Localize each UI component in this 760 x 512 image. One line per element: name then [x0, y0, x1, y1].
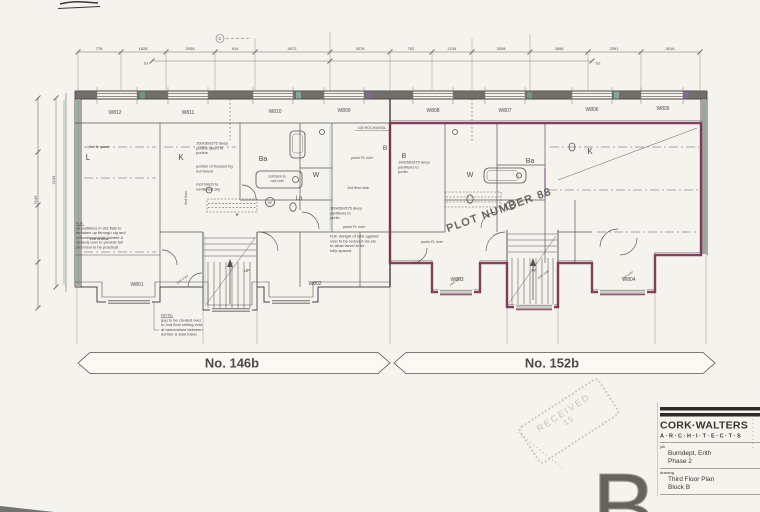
dim-value: 914 [232, 46, 239, 51]
drawing-title: Third Floor Plan [668, 475, 760, 483]
title-block: CORK·WALTERS A·R·C·H·I·T·E·C·T·S job Bur… [657, 402, 760, 497]
purlin-over-label: purlin FL over [420, 240, 444, 244]
room-label-bed: B [383, 145, 387, 152]
bathtub-right [484, 168, 526, 183]
left-dimension-lines: 7146 2134 [33, 93, 66, 311]
purlin-over-label: purlin FL over [342, 225, 366, 229]
architect-profession: A·R·C·H·I·T·E·C·T·S [660, 433, 760, 439]
title-block-rule [660, 443, 760, 444]
floor-slab-label: 2nd floor slab [346, 186, 369, 190]
bottom-windows-right [438, 289, 647, 310]
floor-space-label: 2nd flr space [88, 145, 110, 149]
note-line: not below [196, 169, 251, 174]
floor-label-rotated: 2nd floor [184, 190, 188, 205]
dim-value: 778 [96, 46, 103, 51]
note-line: ventilated sky [196, 187, 241, 192]
dim-value: 2896 [555, 46, 565, 51]
note-trussed: portion of trussed rtg not below [196, 164, 251, 174]
banner-146b-label: No. 146b [205, 356, 259, 371]
basin [320, 130, 325, 135]
room-label-bath: Ba [526, 158, 535, 165]
window-label: W808 [426, 108, 439, 114]
room-label-kitchen: K [178, 153, 184, 162]
dim-mark-s2: S2 [596, 61, 602, 66]
window-label: W812 [108, 110, 121, 116]
rockwool-label: 100 ROCKWOOL [358, 126, 386, 130]
wh-label: WH [268, 200, 273, 204]
address-banners: No. 146b No. 152b [78, 353, 715, 374]
window-label: W807 [498, 108, 511, 114]
note-line: purlin [330, 216, 385, 221]
floor-plan-drawing: 778 1828 2938 914 4572 3076 762 2134 300… [0, 0, 760, 512]
note-tank-weight: N.B. Weight of tank applied over to be r… [330, 234, 395, 253]
note-roof-hatch: roof hatch to ventilated sky [196, 182, 241, 192]
dim-value: 2591 [610, 46, 620, 51]
note-stair: NOTE: gap to be created over to 2nd floo… [161, 313, 236, 337]
asterisk-mark: * [235, 212, 238, 221]
note-partitions: N.B. all partitions in 3rd flats to be t… [76, 221, 151, 250]
window-label: W810 [268, 109, 281, 115]
title-block-bar [660, 413, 760, 417]
window-label: W805 [656, 106, 669, 112]
bathtub-left [290, 131, 305, 158]
dim-value-left: 7146 [33, 195, 38, 205]
job-name: Burndept, Erith [668, 449, 760, 457]
note-line: snd insul to be practical. [76, 245, 151, 250]
bottom-windows-left [106, 300, 312, 313]
tank-note-line: cold tank to [268, 175, 285, 179]
title-block-bar [660, 407, 760, 411]
window-label: W809 [337, 108, 350, 114]
job-phase: Phase 2 [668, 457, 760, 465]
dim-value: 762 [408, 46, 415, 51]
architect-firm-name: CORK·WALTERS [660, 420, 760, 432]
dim-value: 2134 [448, 46, 458, 51]
title-block-rule [660, 495, 760, 496]
window-label: W802 [308, 281, 321, 287]
dim-value: 3008 [497, 46, 507, 51]
window-label: W806 [585, 107, 598, 113]
door-arcs [162, 185, 637, 287]
watermark-letter-b: B [592, 454, 656, 512]
stair-left [204, 238, 256, 308]
drawing-block: Block B [668, 483, 760, 491]
scan-artifacts [0, 2, 100, 512]
note-purlins-1: 100x50x575 deep purlins taken to purlins [196, 141, 251, 155]
basin [453, 130, 458, 135]
purlin-over-label: purlin FL over [350, 156, 374, 160]
top-dimension-lines: 778 1828 2938 914 4572 3076 762 2134 300… [76, 32, 703, 90]
tank-note-line: roof void [270, 179, 283, 183]
note-line: dormer & stair tower. [161, 332, 236, 337]
note-purlins-2: 100x50x575 deep partitions to purlin [398, 160, 453, 174]
room-label-kitchen: K [587, 147, 593, 156]
dim-mark-s1: S1 [144, 61, 150, 66]
plan-labels: W812 W811 W810 W809 W808 W807 W806 W805 … [86, 106, 670, 288]
scanned-floor-plan-page: 778 1828 2938 914 4572 3076 762 2134 300… [0, 0, 760, 512]
dim-value: 1828 [139, 46, 149, 51]
title-block-rule [660, 469, 760, 470]
room-label-wc: W [467, 172, 474, 179]
dim-value: 4572 [288, 46, 298, 51]
room-label-living: L [86, 153, 91, 162]
room-label-bath: Ba [259, 156, 268, 163]
note-line: purlins [196, 151, 251, 156]
window-label: W811 [182, 110, 195, 116]
dim-value: 2938 [186, 46, 196, 51]
banner-152b-label: No. 152b [525, 356, 579, 371]
room-label-wc: W [313, 172, 320, 179]
wc-pan [290, 203, 296, 211]
note-line: fully spaced. [330, 248, 395, 253]
room-label-bed: B [402, 153, 407, 160]
dim-value: 3016 [666, 46, 676, 51]
note-purlins-3: 100x50x575 deep partitions to purlin [330, 206, 385, 220]
note-line: purlin [398, 170, 453, 175]
dim-value-left: 2134 [51, 175, 56, 185]
plot-number-stamp: PLOT NUMBER 88 [445, 185, 554, 234]
room-label-linen: Ln [296, 196, 303, 202]
note-leaders [154, 302, 159, 330]
dim-value: 3076 [356, 46, 366, 51]
dim-mark-d: D [219, 36, 222, 41]
window-label: W801 [130, 282, 143, 288]
stair-up-label: UP [244, 268, 250, 273]
stair-up-label: up [532, 267, 537, 272]
